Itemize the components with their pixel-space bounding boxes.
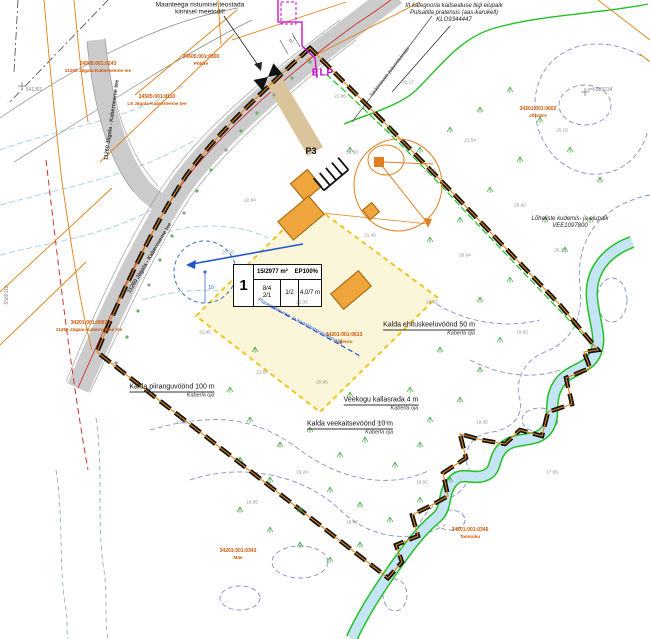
elevation-mark: 21.86 [334, 94, 346, 99]
elevation-mark: 20.64 [459, 253, 471, 258]
salmon-note-line2: VEE1097800 [552, 223, 587, 229]
cadastral-label: 34201:001:0346Tammiku [452, 528, 489, 541]
elevation-mark: 21.15 [176, 420, 188, 425]
plot-area: 15/2977 m² [257, 269, 288, 275]
elp-label: ELP [312, 68, 334, 79]
elevation-mark: 18.85 [246, 500, 258, 505]
habitat-note: III kategooria kaitsealuse liigi elupaik… [405, 3, 502, 25]
zone-label: Kalda piiranguvöönd 100 mKaberla oja [129, 384, 214, 399]
road-name-label: 11260 Jägala - Kaberneeme tee [127, 222, 174, 295]
elevation-mark: 20.35 [554, 248, 566, 253]
elevation-mark: 22.60 [346, 150, 358, 155]
habitat-note-line3: KLO9344447 [436, 18, 471, 24]
plot-use: EP100% [295, 269, 318, 275]
salmon-note-line1: Lõheliste kudemis- ja elupaik [531, 216, 608, 222]
habitat-note-line2: Pulsatilla pratensis (aas-karukell) [410, 10, 498, 16]
dimension-label: 0,7 [288, 35, 298, 45]
elevation-mark: 21.95 [199, 330, 211, 335]
coordinate-label: 6589112 [4, 285, 10, 304]
zone-label: Veekogu kallasrada 4 mKaberla oja [344, 397, 419, 412]
elevation-mark: 18.92 [416, 480, 428, 485]
elevation-mark: 21.12 [424, 168, 436, 173]
elevation-mark: 21.45 [364, 233, 376, 238]
elevation-mark: 17.95 [546, 470, 558, 475]
elevation-mark: 19.78 [376, 420, 388, 425]
elevation-mark: 21.54 [464, 138, 476, 143]
zone-label: Kalda ehituskeeluvöönd 50 mKaberla oja [383, 322, 475, 337]
elevation-mark: 20.92 [514, 203, 526, 208]
elevation-mark: 18.46 [346, 520, 358, 525]
detail-plan-map: Maanteega ristumisel teostada kinnisel m… [0, 0, 650, 639]
cadastral-label: 34201:001:0602Jõeääre [520, 107, 557, 120]
plot-val-1a: 8/4 [263, 286, 271, 293]
construction-note-line2: kinnisel meetodil! [175, 9, 225, 16]
salmon-habitat-note: Lõheliste kudemis- ja elupaik VEE1097800 [531, 216, 608, 230]
plot-number: 1 [234, 265, 254, 306]
ditch-label: Sademevee äravoolukraav [369, 46, 412, 98]
construction-note-line1: Maanteega ristumisel teostada [156, 2, 245, 9]
cadastral-label: 24505:001:024311260 Jägala-Kaberneeme te… [65, 62, 131, 75]
construction-note: Maanteega ristumisel teostada kinnisel m… [156, 2, 245, 17]
coordinate-label: 541361 [26, 87, 43, 93]
coordinate-label: x=6589234 [588, 87, 613, 93]
habitat-note-line1: III kategooria kaitsealuse liigi elupaik [405, 3, 502, 9]
elevation-mark: 22.10 [222, 250, 234, 255]
plot-info-table: 1 15/2977 m² EP100% 8/4 2/1 1/2 4,0/7 m [233, 264, 322, 307]
cadastral-label: 34201:001:006211260 Jägala-Kaberneeme te… [56, 321, 122, 334]
elevation-mark: 21.60 [256, 370, 268, 375]
cadastral-label: 34201:001:0343Mäe [220, 549, 257, 562]
cadastral-label: 24505:001:0110L8 Jägala-Kaberneeme tee [127, 95, 186, 108]
parking-label: P3 [305, 146, 316, 156]
elevation-mark: 22.84 [244, 198, 256, 203]
elevation-mark: 20.95 [316, 380, 328, 385]
elevation-mark: 19.24 [296, 470, 308, 475]
map-labels: Maanteega ristumisel teostada kinnisel m… [0, 0, 650, 639]
cadastral-label: 24505:001:0300Põldre [183, 55, 220, 68]
elevation-mark: 20.72 [426, 300, 438, 305]
elevation-mark: 19.82 [516, 330, 528, 335]
elevation-mark: 22.17 [402, 80, 414, 85]
road-name-label: 11260 Jägala - Kaberneeme tee [103, 79, 120, 160]
elevation-mark: 22.35 [296, 300, 308, 305]
elevation-mark: 19.35 [476, 420, 488, 425]
well-radius-label: 10 [208, 285, 214, 291]
elevation-mark: 20.10 [556, 128, 568, 133]
